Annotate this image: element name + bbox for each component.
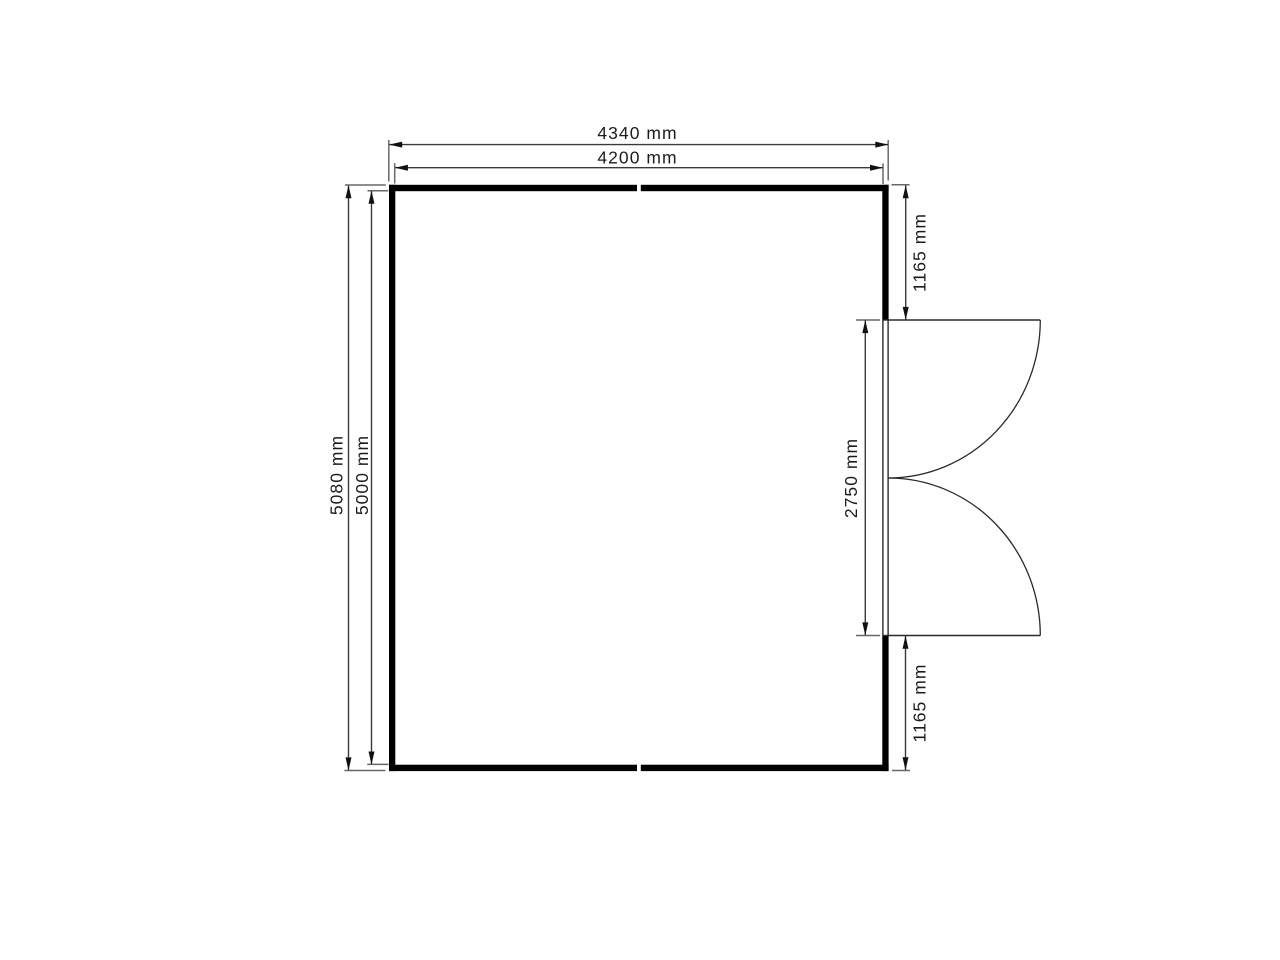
svg-text:4200 mm: 4200 mm (597, 148, 677, 168)
svg-text:2750 mm: 2750 mm (841, 438, 861, 518)
svg-text:1165 mm: 1165 mm (909, 664, 929, 743)
svg-text:4340 mm: 4340 mm (597, 123, 677, 143)
svg-text:5080 mm: 5080 mm (327, 435, 347, 515)
svg-text:1165 mm: 1165 mm (910, 213, 930, 292)
svg-text:5000 mm: 5000 mm (352, 435, 372, 515)
